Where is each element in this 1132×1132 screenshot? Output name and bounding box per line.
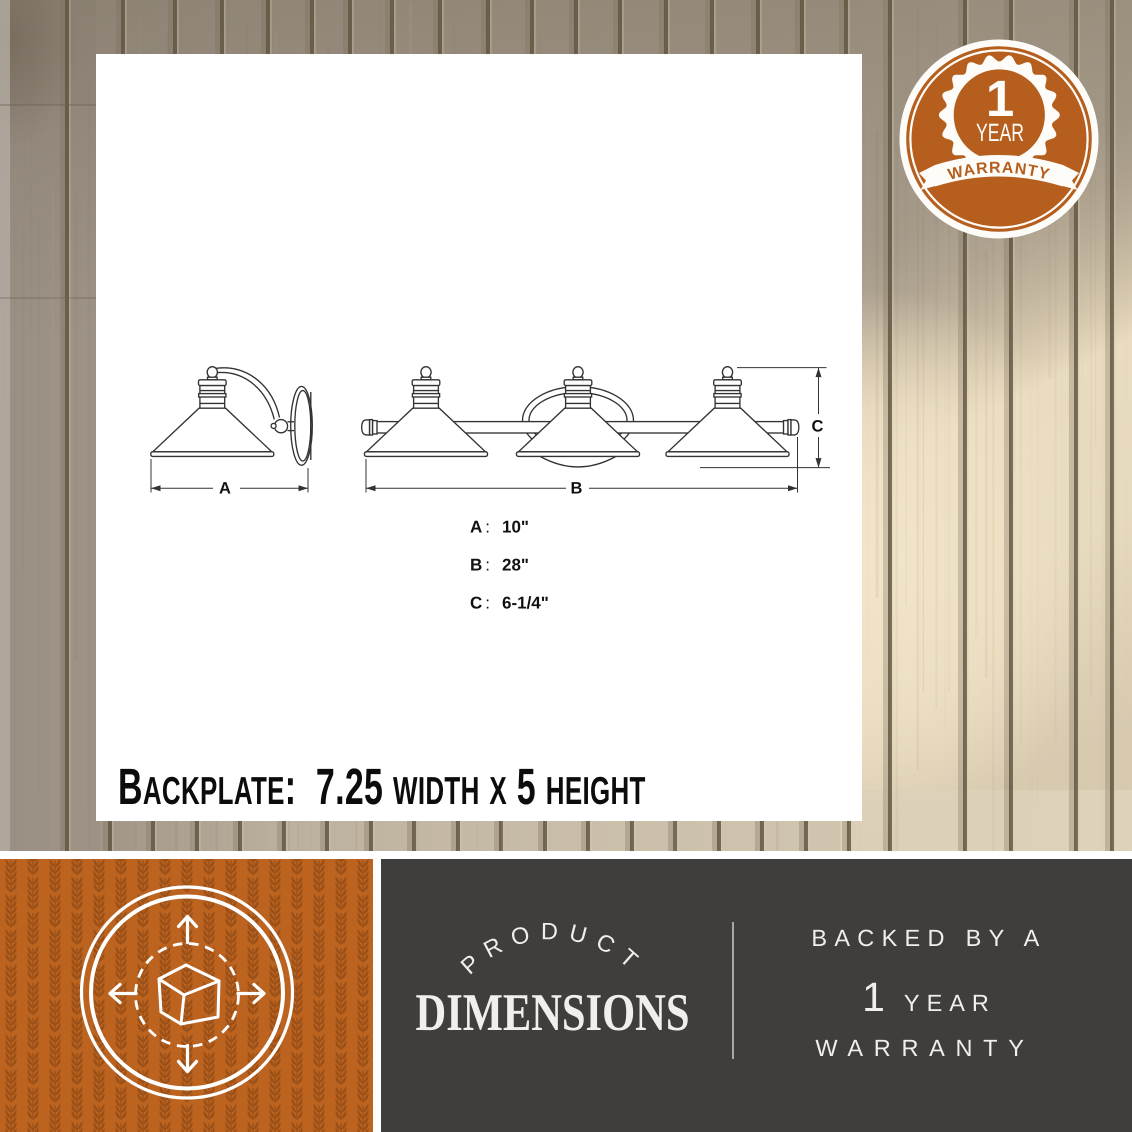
svg-text:WARRANTY: WARRANTY: [815, 1035, 1034, 1061]
svg-text:B:28": B:28": [470, 556, 529, 575]
svg-text:A: A: [219, 480, 231, 498]
svg-text:A:10": A:10": [470, 518, 529, 537]
svg-text:C: C: [812, 418, 824, 436]
svg-text:DIMENSIONS: DIMENSIONS: [416, 984, 690, 1042]
svg-text:B: B: [571, 480, 583, 498]
svg-text:C:6-1/4": C:6-1/4": [470, 594, 549, 613]
svg-text:BACKED BY A: BACKED BY A: [811, 925, 1046, 951]
svg-text:YEAR: YEAR: [976, 119, 1024, 147]
